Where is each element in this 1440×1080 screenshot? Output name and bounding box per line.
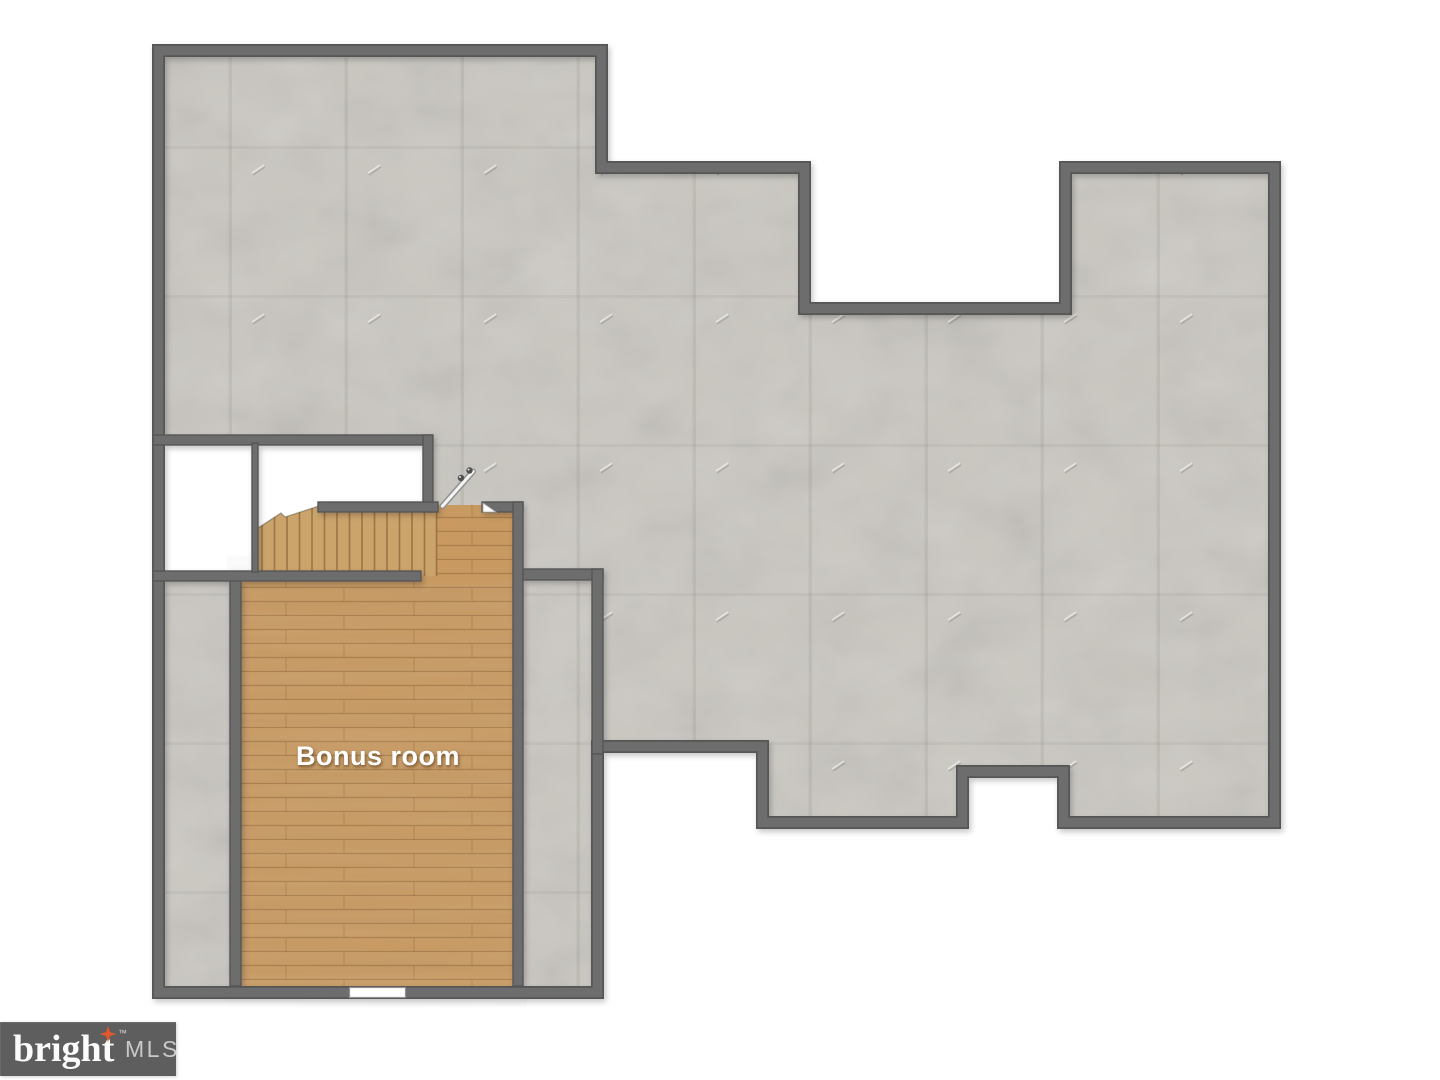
bonus-room-floor [241,576,513,986]
wall-right-strip-top [523,569,603,580]
logo-suffix: MLS [125,1036,180,1063]
wall-bonus-left [230,576,241,986]
bonus-room-label: Bonus room [255,741,501,772]
wall-stairs-bottom [153,571,421,581]
wall-bonus-right [513,502,523,986]
wall-closet-divider [252,443,258,572]
wall-void-right [423,435,433,512]
floor-plan-page: Bonus room bright ™ MLS [0,0,1440,1080]
star-icon [99,1025,117,1043]
floor-plan-canvas [0,0,1440,1080]
closet-room-left [163,445,252,572]
wall-closets-top [153,435,432,445]
stair-landing-floor [430,505,513,580]
wall-stairs-top [318,502,438,512]
wall-right-strip-side [592,569,603,754]
bright-mls-logo: bright ™ MLS [0,1022,176,1076]
bottom-window-threshold [350,988,406,998]
